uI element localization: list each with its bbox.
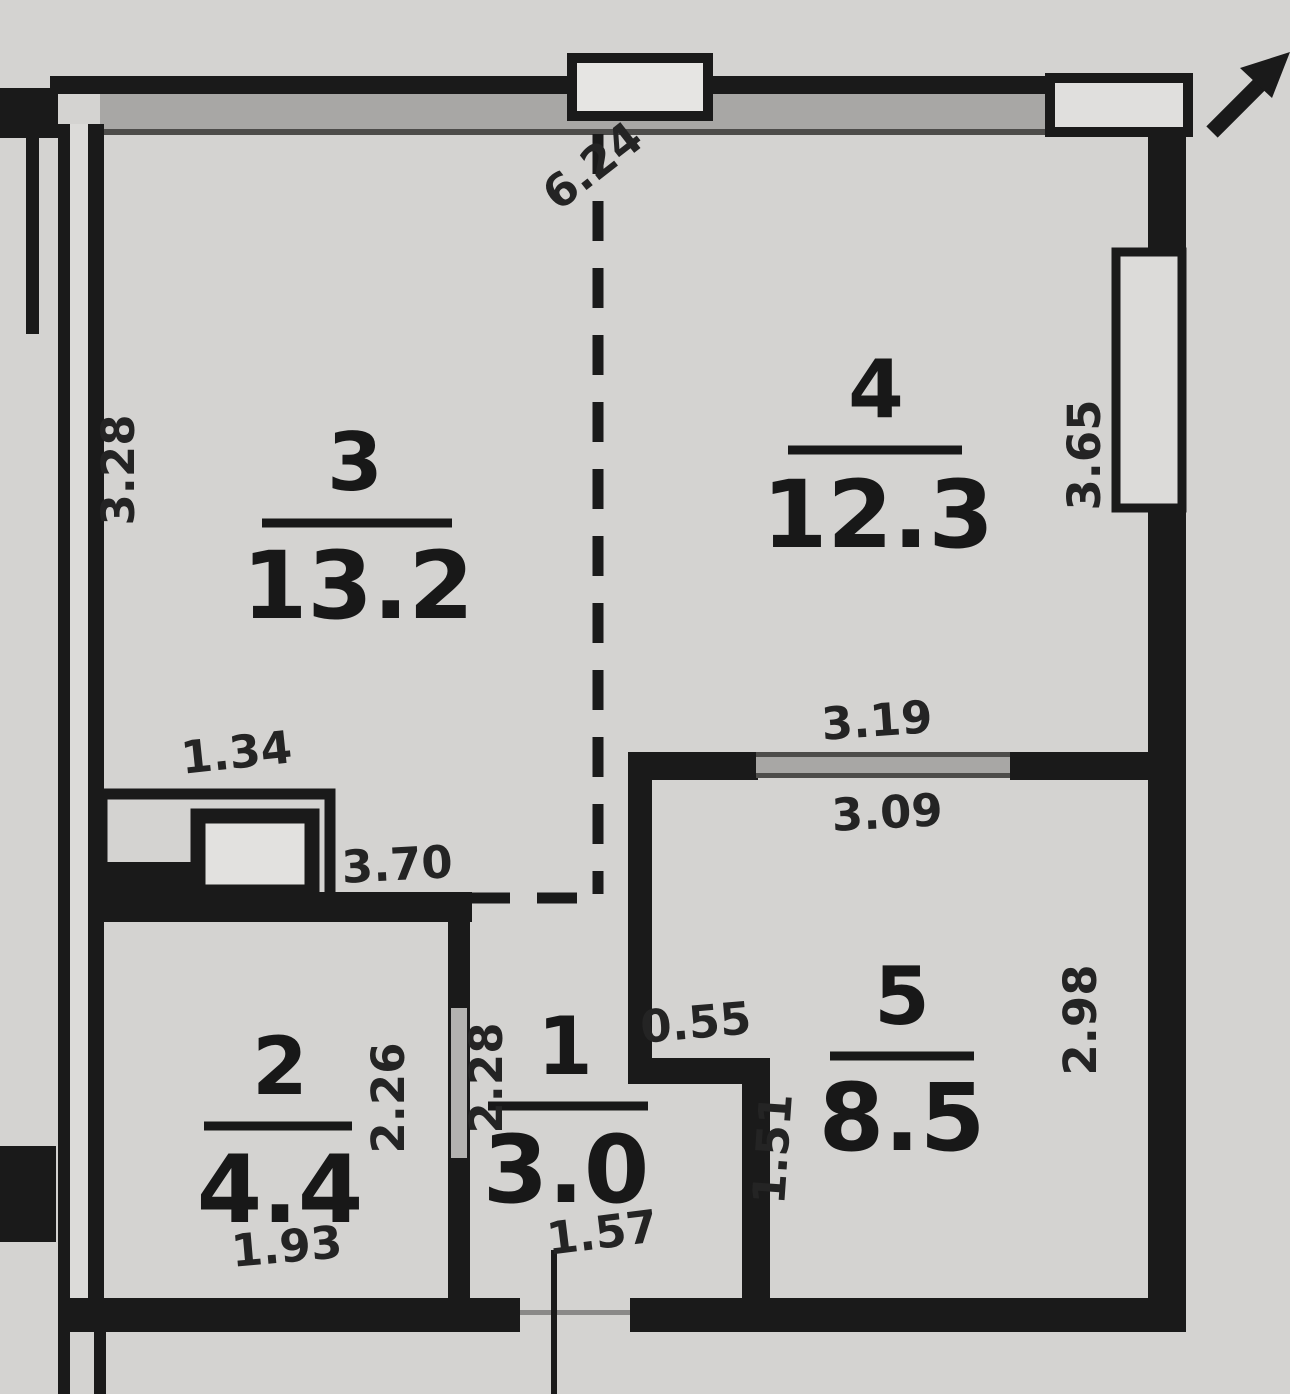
- corner-arrow-icon: [1212, 52, 1290, 132]
- closet-inner-box: [198, 816, 312, 892]
- entry-door-line: [551, 1250, 557, 1394]
- dim-room4-window-inner: 3.09: [830, 783, 944, 842]
- pilaster-right: [1116, 252, 1182, 508]
- entry-opening: [520, 1310, 630, 1315]
- window-band-top-edge: [100, 129, 1055, 135]
- window-room4-bottom-edge: [756, 773, 1012, 778]
- dim-room5-left: 1.51: [742, 1092, 803, 1206]
- wall-left-outer: [58, 124, 70, 1332]
- dim-room3-left: 3.28: [92, 414, 145, 525]
- room-area: 8.5: [819, 1064, 986, 1173]
- window-top-center: [572, 58, 708, 116]
- window-room4: [756, 754, 1012, 776]
- wall-left-stub-inner: [94, 1332, 106, 1394]
- dim-room2-bottom: 1.93: [229, 1215, 344, 1277]
- dim-room2-wall: 2.26: [362, 1042, 415, 1153]
- dim-closet-width: 1.34: [178, 720, 294, 784]
- dim-opening-width: 0.55: [638, 991, 753, 1053]
- wall-top-right-cap: [1050, 78, 1188, 132]
- wall-left-inner: [88, 124, 104, 1332]
- room-number: 3: [327, 416, 383, 509]
- dim-room5-right: 2.98: [1054, 964, 1107, 1075]
- window-room4-top-edge: [756, 752, 1012, 757]
- wall-room4-bottom-right: [1010, 752, 1152, 780]
- room-label-4: 4 12.3: [762, 343, 994, 570]
- room-number: 4: [848, 343, 904, 436]
- wall-left-stub-outer: [58, 1332, 70, 1394]
- room-number: 2: [252, 1020, 308, 1113]
- balcony-line-left: [26, 92, 39, 334]
- room-number: 5: [874, 950, 930, 1043]
- room-label-3: 3 13.2: [242, 416, 474, 641]
- dim-room1-wall: 2.28: [460, 1022, 513, 1133]
- floor-plan: 3 13.2 4 12.3 2 4.4 1 3.0 5 8.5 6.24 3.2…: [0, 0, 1290, 1394]
- room-number: 1: [537, 1000, 593, 1093]
- room-label-5: 5 8.5: [819, 950, 986, 1173]
- wall-center-jog: [628, 1058, 770, 1084]
- dim-room4-right: 3.65: [1058, 399, 1111, 510]
- room-area: 13.2: [242, 532, 474, 641]
- wall-left-block: [0, 1146, 56, 1242]
- room-label-2: 2 4.4: [197, 1020, 364, 1245]
- wall-bottom-right: [630, 1298, 1186, 1332]
- wall-left-core: [70, 124, 88, 1332]
- room-area: 12.3: [762, 461, 994, 570]
- dim-room2-top-width: 3.70: [340, 835, 454, 894]
- dim-room4-window-outer: 3.19: [820, 690, 934, 751]
- closet-left-block: [102, 862, 198, 898]
